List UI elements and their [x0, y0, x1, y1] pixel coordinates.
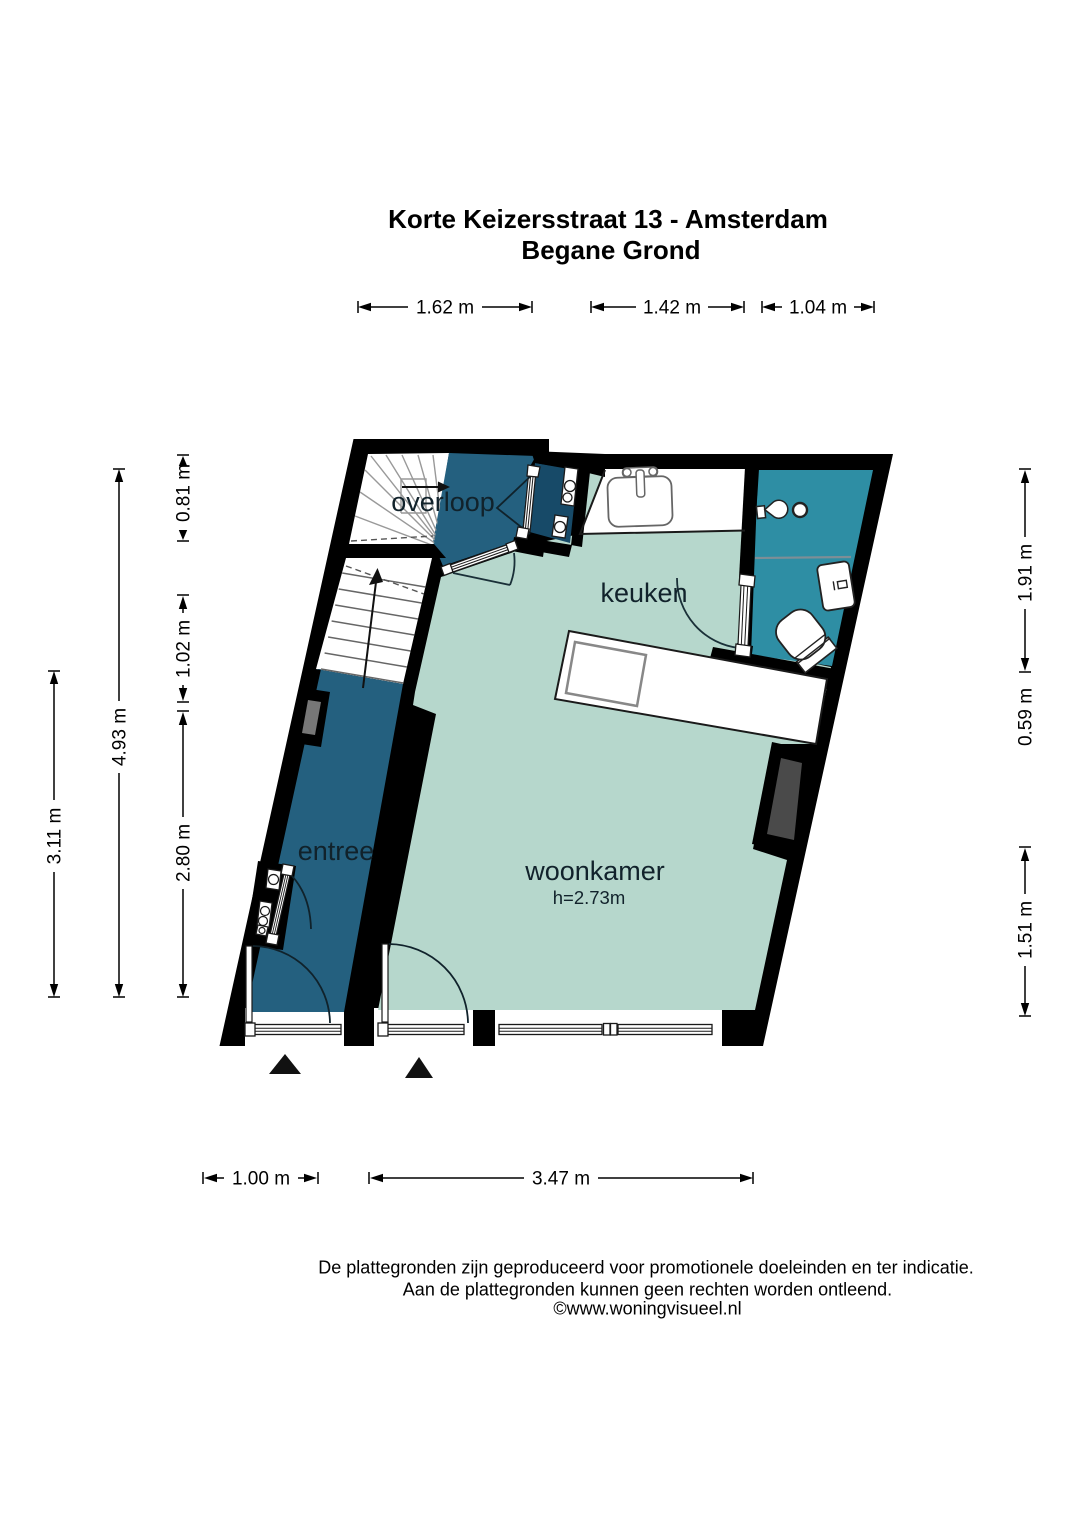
svg-text:1.42 m: 1.42 m: [643, 298, 701, 319]
svg-text:1.51 m: 1.51 m: [1016, 901, 1037, 959]
svg-text:1.62 m: 1.62 m: [416, 298, 474, 319]
svg-text:3.47 m: 3.47 m: [532, 1169, 590, 1190]
svg-text:woonkamer: woonkamer: [524, 856, 665, 886]
svg-text:2.80 m: 2.80 m: [174, 824, 195, 882]
svg-text:overloop: overloop: [391, 487, 495, 517]
svg-text:Aan de plattegronden kunnen ge: Aan de plattegronden kunnen geen rechten…: [403, 1280, 892, 1300]
svg-text:0.59 m: 0.59 m: [1016, 688, 1037, 746]
svg-text:1.02 m: 1.02 m: [174, 620, 195, 678]
svg-text:Korte Keizersstraat 13 - Amste: Korte Keizersstraat 13 - Amsterdam: [388, 204, 828, 234]
svg-text:1.04 m: 1.04 m: [789, 298, 847, 319]
svg-text:Begane Grond: Begane Grond: [521, 235, 700, 265]
svg-text:3.11 m: 3.11 m: [45, 808, 66, 865]
svg-text:De plattegronden zijn geproduc: De plattegronden zijn geproduceerd voor …: [318, 1258, 973, 1278]
svg-text:1.00 m: 1.00 m: [232, 1169, 290, 1190]
svg-text:entree: entree: [298, 836, 375, 866]
svg-text:1.91 m: 1.91 m: [1016, 544, 1037, 602]
svg-text:0.81 m: 0.81 m: [174, 464, 195, 522]
svg-text:©www.woningvisueel.nl: ©www.woningvisueel.nl: [553, 1299, 741, 1319]
svg-text:keuken: keuken: [600, 578, 687, 608]
svg-text:4.93 m: 4.93 m: [110, 708, 131, 766]
svg-text:h=2.73m: h=2.73m: [553, 887, 626, 908]
